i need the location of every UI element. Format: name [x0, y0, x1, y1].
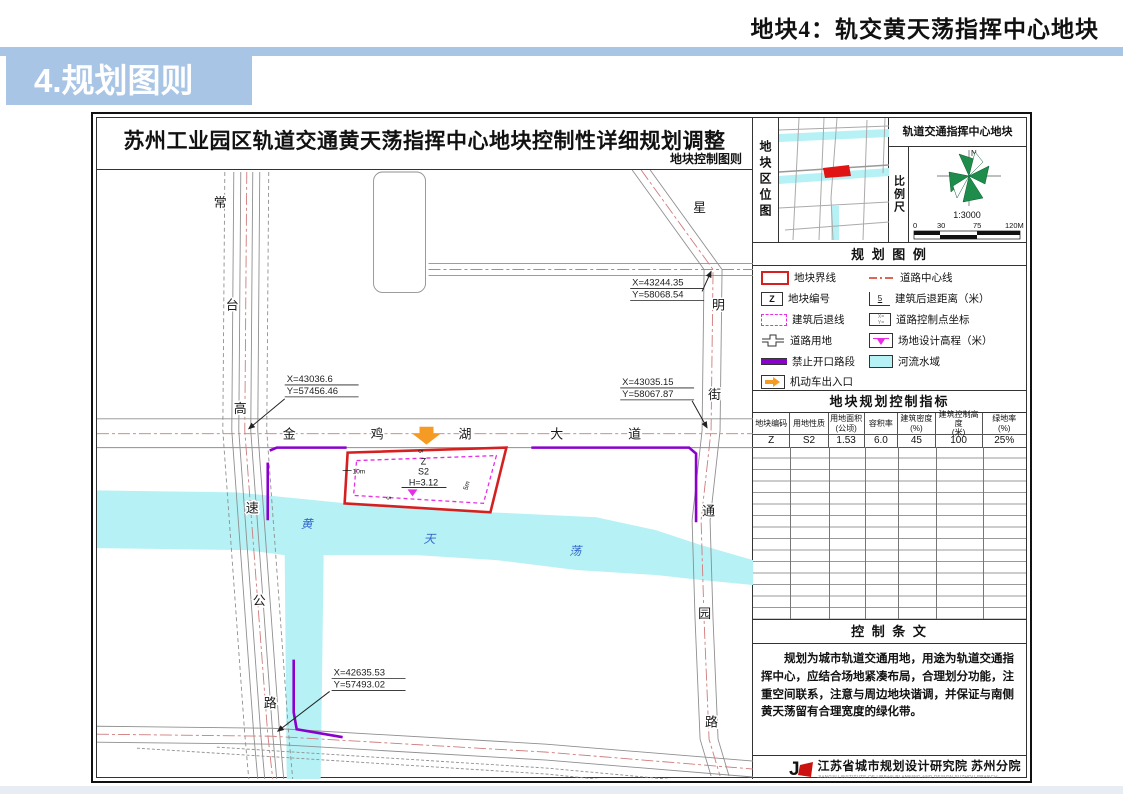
- svg-text:园: 园: [698, 606, 711, 621]
- header-divider-bar: [0, 47, 1123, 56]
- svg-text:星: 星: [693, 200, 706, 215]
- legend-item: Z 地块编号: [761, 291, 830, 306]
- plan-map: Z S2 H=3.12 10m 5m 5 5 X=432: [97, 170, 753, 779]
- map-title: 苏州工业园区轨道交通黄天荡指挥中心地块控制性详细规划调整: [97, 125, 752, 155]
- legend-item: 道路中心线: [869, 270, 953, 285]
- compass-svg: N 1:3000 0: [909, 146, 1026, 242]
- location-minimap-svg: [779, 118, 889, 240]
- legend-label: 道路中心线: [900, 270, 953, 285]
- slide-page: 地块4：轨交黄天荡指挥中心地块 4.规划图则 苏州工业园区轨道交通黄天荡指挥中心…: [0, 0, 1123, 794]
- svg-text:S2: S2: [418, 467, 429, 477]
- map-title-block: 苏州工业园区轨道交通黄天荡指挥中心地块控制性详细规划调整 地块控制图则: [97, 118, 753, 170]
- svg-text:75: 75: [973, 221, 981, 230]
- minimap-plot-highlight: [823, 165, 851, 178]
- indicator-header: 建筑密度 (%): [898, 413, 935, 435]
- road-land-icon: [761, 334, 785, 347]
- jd-logo: J: [788, 757, 814, 779]
- institute-name-en: JIANGSU INSTITUTE OF URBAN PLANNING AND …: [817, 774, 997, 779]
- legend-item: 地块界线: [761, 270, 836, 285]
- legend-item: 禁止开口路段: [761, 354, 855, 369]
- svg-text:X=43244.35: X=43244.35: [632, 277, 683, 288]
- empty-grid: [753, 447, 1026, 619]
- svg-text:10m: 10m: [353, 469, 366, 476]
- scale-bar: 0 30 75 120M: [913, 221, 1024, 239]
- svg-text:0: 0: [913, 221, 917, 230]
- coordinate-callout: X=43035.15 Y=58067.87: [620, 377, 707, 428]
- map-subtitle: 地块控制图则: [670, 150, 742, 167]
- plot-name-header: 轨道交通指挥中心地块: [889, 118, 1026, 147]
- svg-text:通: 通: [702, 503, 715, 518]
- section-banner: 4.规划图则: [6, 56, 252, 105]
- svg-text:X=43036.6: X=43036.6: [287, 374, 333, 385]
- svg-text:路: 路: [705, 714, 718, 729]
- plot-code-icon: Z: [761, 292, 783, 306]
- legend-label: 道路控制点坐标: [896, 312, 970, 327]
- location-right-box: 轨道交通指挥中心地块 比例尺 N: [889, 118, 1026, 242]
- indicator-header: 容积率: [865, 413, 899, 435]
- indicators-table: 地块编码 用地性质 用地面积 (公顷) 容积率 建筑密度 (%) 建筑控制高度 …: [753, 412, 1026, 448]
- svg-text:J: J: [789, 759, 800, 779]
- vehicle-entrance-arrow: [413, 427, 441, 445]
- svg-text:30: 30: [937, 221, 945, 230]
- svg-text:黄: 黄: [301, 517, 315, 531]
- indicator-header: 建筑控制高度 (米): [936, 413, 983, 435]
- bottom-strip: [0, 786, 1123, 794]
- legend-label: 地块编号: [788, 291, 830, 306]
- section-banner-label: 4.规划图则: [6, 56, 252, 105]
- svg-text:台: 台: [226, 297, 239, 312]
- sheet-footer: J 江苏省城市规划设计研究院 苏州分院 JIANGSU INSTITUTE OF…: [753, 755, 1026, 779]
- legend-label: 地块界线: [794, 270, 836, 285]
- scale-label: 比例尺: [891, 175, 907, 214]
- svg-text:明: 明: [712, 297, 725, 312]
- svg-text:路: 路: [264, 695, 277, 710]
- svg-text:公: 公: [253, 593, 266, 608]
- legend-item: 河流水域: [869, 354, 940, 369]
- scale-label-strip: 比例尺: [889, 146, 909, 242]
- road-control-point-icon: X=Y=: [869, 313, 891, 326]
- legend-label: 禁止开口路段: [792, 354, 855, 369]
- road-centerline-icon: [869, 277, 895, 279]
- svg-text:鸡: 鸡: [371, 427, 384, 442]
- svg-text:Y=57456.46: Y=57456.46: [287, 386, 338, 397]
- plan-map-svg: Z S2 H=3.12 10m 5m 5 5 X=432: [97, 170, 753, 779]
- legend-body: 地块界线 Z 地块编号 建筑后退线: [753, 266, 1026, 390]
- svg-text:Y=57493.02: Y=57493.02: [334, 679, 385, 690]
- river-icon: [869, 355, 893, 368]
- svg-text:高: 高: [234, 401, 247, 416]
- provisions-title: 控 制 条 文: [753, 619, 1026, 644]
- location-map-label: 地块区位图: [757, 140, 774, 220]
- legend-label: 河流水域: [898, 354, 940, 369]
- legend-label: 建筑后退距离（米）: [895, 291, 990, 306]
- svg-text:荡: 荡: [569, 544, 583, 558]
- location-map-label-strip: 地块区位图: [753, 118, 779, 242]
- institute-name: 江苏省城市规划设计研究院 苏州分院: [817, 757, 1021, 774]
- scale-ratio: 1:3000: [953, 210, 981, 220]
- setback-distance-icon: 5: [869, 292, 890, 306]
- provisions-text: 规划为城市轨道交通用地，用途为轨道交通指挥中心，应结合场地紧凑布局，合理划分功能…: [753, 644, 1026, 755]
- legend-title: 规 划 图 例: [753, 242, 1026, 266]
- svg-text:X=43035.15: X=43035.15: [622, 377, 673, 388]
- svg-text:天: 天: [424, 532, 437, 546]
- svg-text:Y=58067.87: Y=58067.87: [622, 389, 673, 400]
- indicators-header-row: 地块编码 用地性质 用地面积 (公顷) 容积率 建筑密度 (%) 建筑控制高度 …: [753, 413, 1026, 435]
- indicator-header: 绿地率 (%): [983, 413, 1026, 435]
- legend-label: 场地设计高程（米）: [898, 333, 993, 348]
- indicator-header: 用地面积 (公顷): [829, 413, 865, 435]
- legend-item: X=Y= 道路控制点坐标: [869, 312, 970, 327]
- no-access-icon: [761, 358, 787, 365]
- svg-text:街: 街: [708, 387, 721, 402]
- location-minimap: [779, 118, 889, 242]
- plot-boundary-icon: [761, 271, 789, 285]
- vehicle-entrance-icon: [761, 375, 785, 389]
- legend-item: 建筑后退线: [761, 312, 845, 327]
- svg-text:金: 金: [283, 427, 296, 442]
- svg-text:120M: 120M: [1005, 221, 1024, 230]
- svg-text:速: 速: [246, 500, 259, 515]
- site-elevation-icon: [869, 333, 893, 348]
- legend-item: 场地设计高程（米）: [869, 333, 993, 348]
- indicators-title: 地块规划控制指标: [753, 390, 1026, 412]
- sheet-frame: 苏州工业园区轨道交通黄天荡指挥中心地块控制性详细规划调整 地块控制图则: [96, 117, 1027, 778]
- right-panel: 地块区位图: [753, 118, 1026, 779]
- svg-text:H=3.12: H=3.12: [409, 477, 438, 487]
- legend-item: 5 建筑后退距离（米）: [869, 291, 990, 306]
- indicator-header: 地块编码: [753, 413, 790, 435]
- compass-zone: N 1:3000 0: [909, 146, 1026, 242]
- legend-item: 机动车出入口: [761, 374, 853, 389]
- svg-text:道: 道: [628, 427, 641, 442]
- coordinate-callout: X=43036.6 Y=57456.46: [249, 374, 359, 429]
- svg-text:大: 大: [550, 427, 563, 442]
- legend-label: 建筑后退线: [792, 312, 845, 327]
- svg-text:常: 常: [214, 195, 227, 210]
- legend-label: 道路用地: [790, 333, 832, 348]
- svg-text:湖: 湖: [458, 427, 471, 442]
- plan-sheet: 苏州工业园区轨道交通黄天荡指挥中心地块控制性详细规划调整 地块控制图则: [91, 112, 1032, 783]
- page-title: 地块4：轨交黄天荡指挥中心地块: [751, 10, 1100, 44]
- legend-item: 道路用地: [761, 333, 832, 348]
- compass-rose: [949, 152, 989, 202]
- svg-text:X=42635.53: X=42635.53: [334, 668, 385, 679]
- legend-label: 机动车出入口: [790, 374, 853, 389]
- setback-line-icon: [761, 314, 787, 326]
- indicator-header: 用地性质: [790, 413, 828, 435]
- svg-text:Y=58068.54: Y=58068.54: [632, 289, 683, 300]
- svg-text:Z: Z: [421, 457, 427, 467]
